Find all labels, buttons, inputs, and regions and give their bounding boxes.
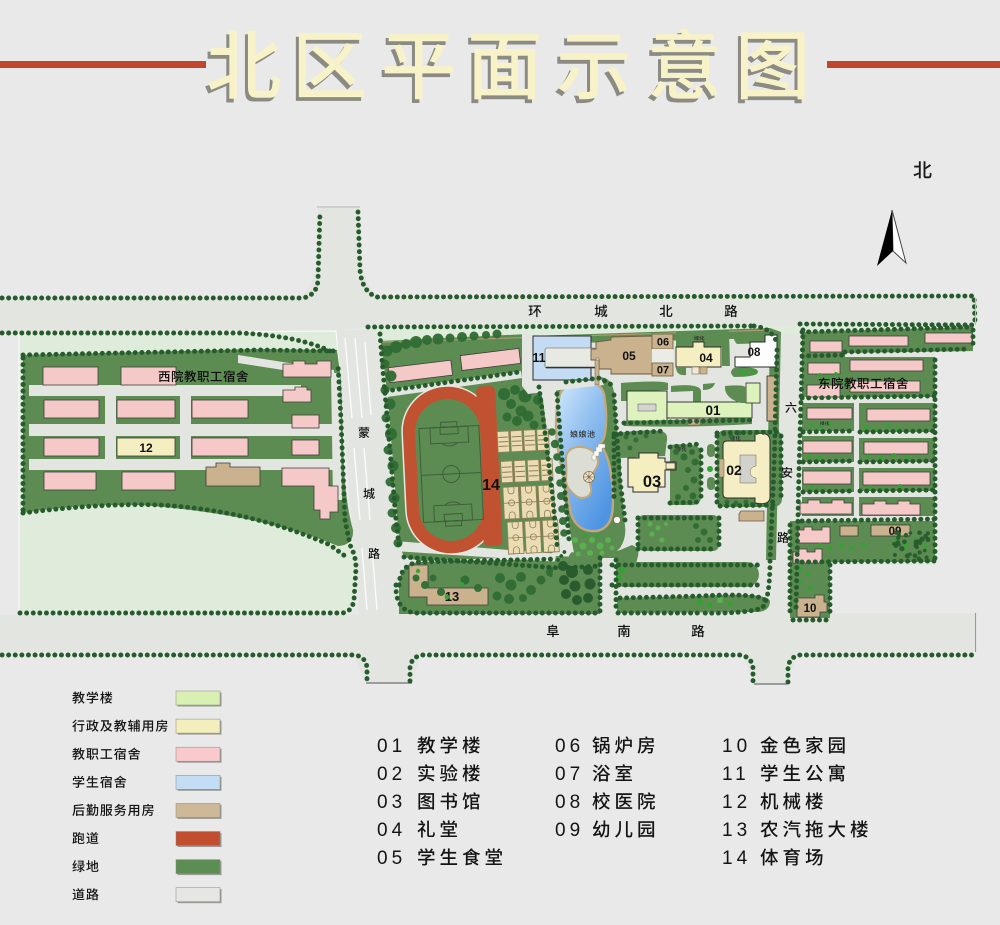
svg-text:02: 02 <box>726 462 742 478</box>
svg-text:06: 06 <box>555 736 584 757</box>
svg-text:02: 02 <box>377 764 406 785</box>
svg-text:10: 10 <box>722 736 751 757</box>
svg-text:05: 05 <box>622 349 636 363</box>
svg-text:04: 04 <box>377 820 406 841</box>
svg-text:11: 11 <box>532 351 545 365</box>
svg-text:10: 10 <box>804 603 817 615</box>
svg-text:08: 08 <box>748 347 761 359</box>
svg-text:07: 07 <box>555 764 584 785</box>
svg-text:11: 11 <box>722 764 750 785</box>
svg-text:03: 03 <box>377 792 406 813</box>
svg-text:04: 04 <box>699 351 713 365</box>
svg-text:05: 05 <box>377 848 406 869</box>
svg-text:12: 12 <box>139 441 153 455</box>
svg-text:08: 08 <box>555 792 584 813</box>
svg-text:07: 07 <box>657 365 669 377</box>
svg-text:14: 14 <box>722 848 751 869</box>
svg-text:03: 03 <box>643 473 661 491</box>
svg-text:06: 06 <box>657 337 669 349</box>
svg-text:14: 14 <box>482 477 500 494</box>
svg-text:09: 09 <box>555 820 584 841</box>
svg-text:12: 12 <box>722 792 751 813</box>
svg-text:13: 13 <box>722 820 751 841</box>
svg-text:01: 01 <box>377 736 406 757</box>
svg-text:01: 01 <box>705 403 721 418</box>
